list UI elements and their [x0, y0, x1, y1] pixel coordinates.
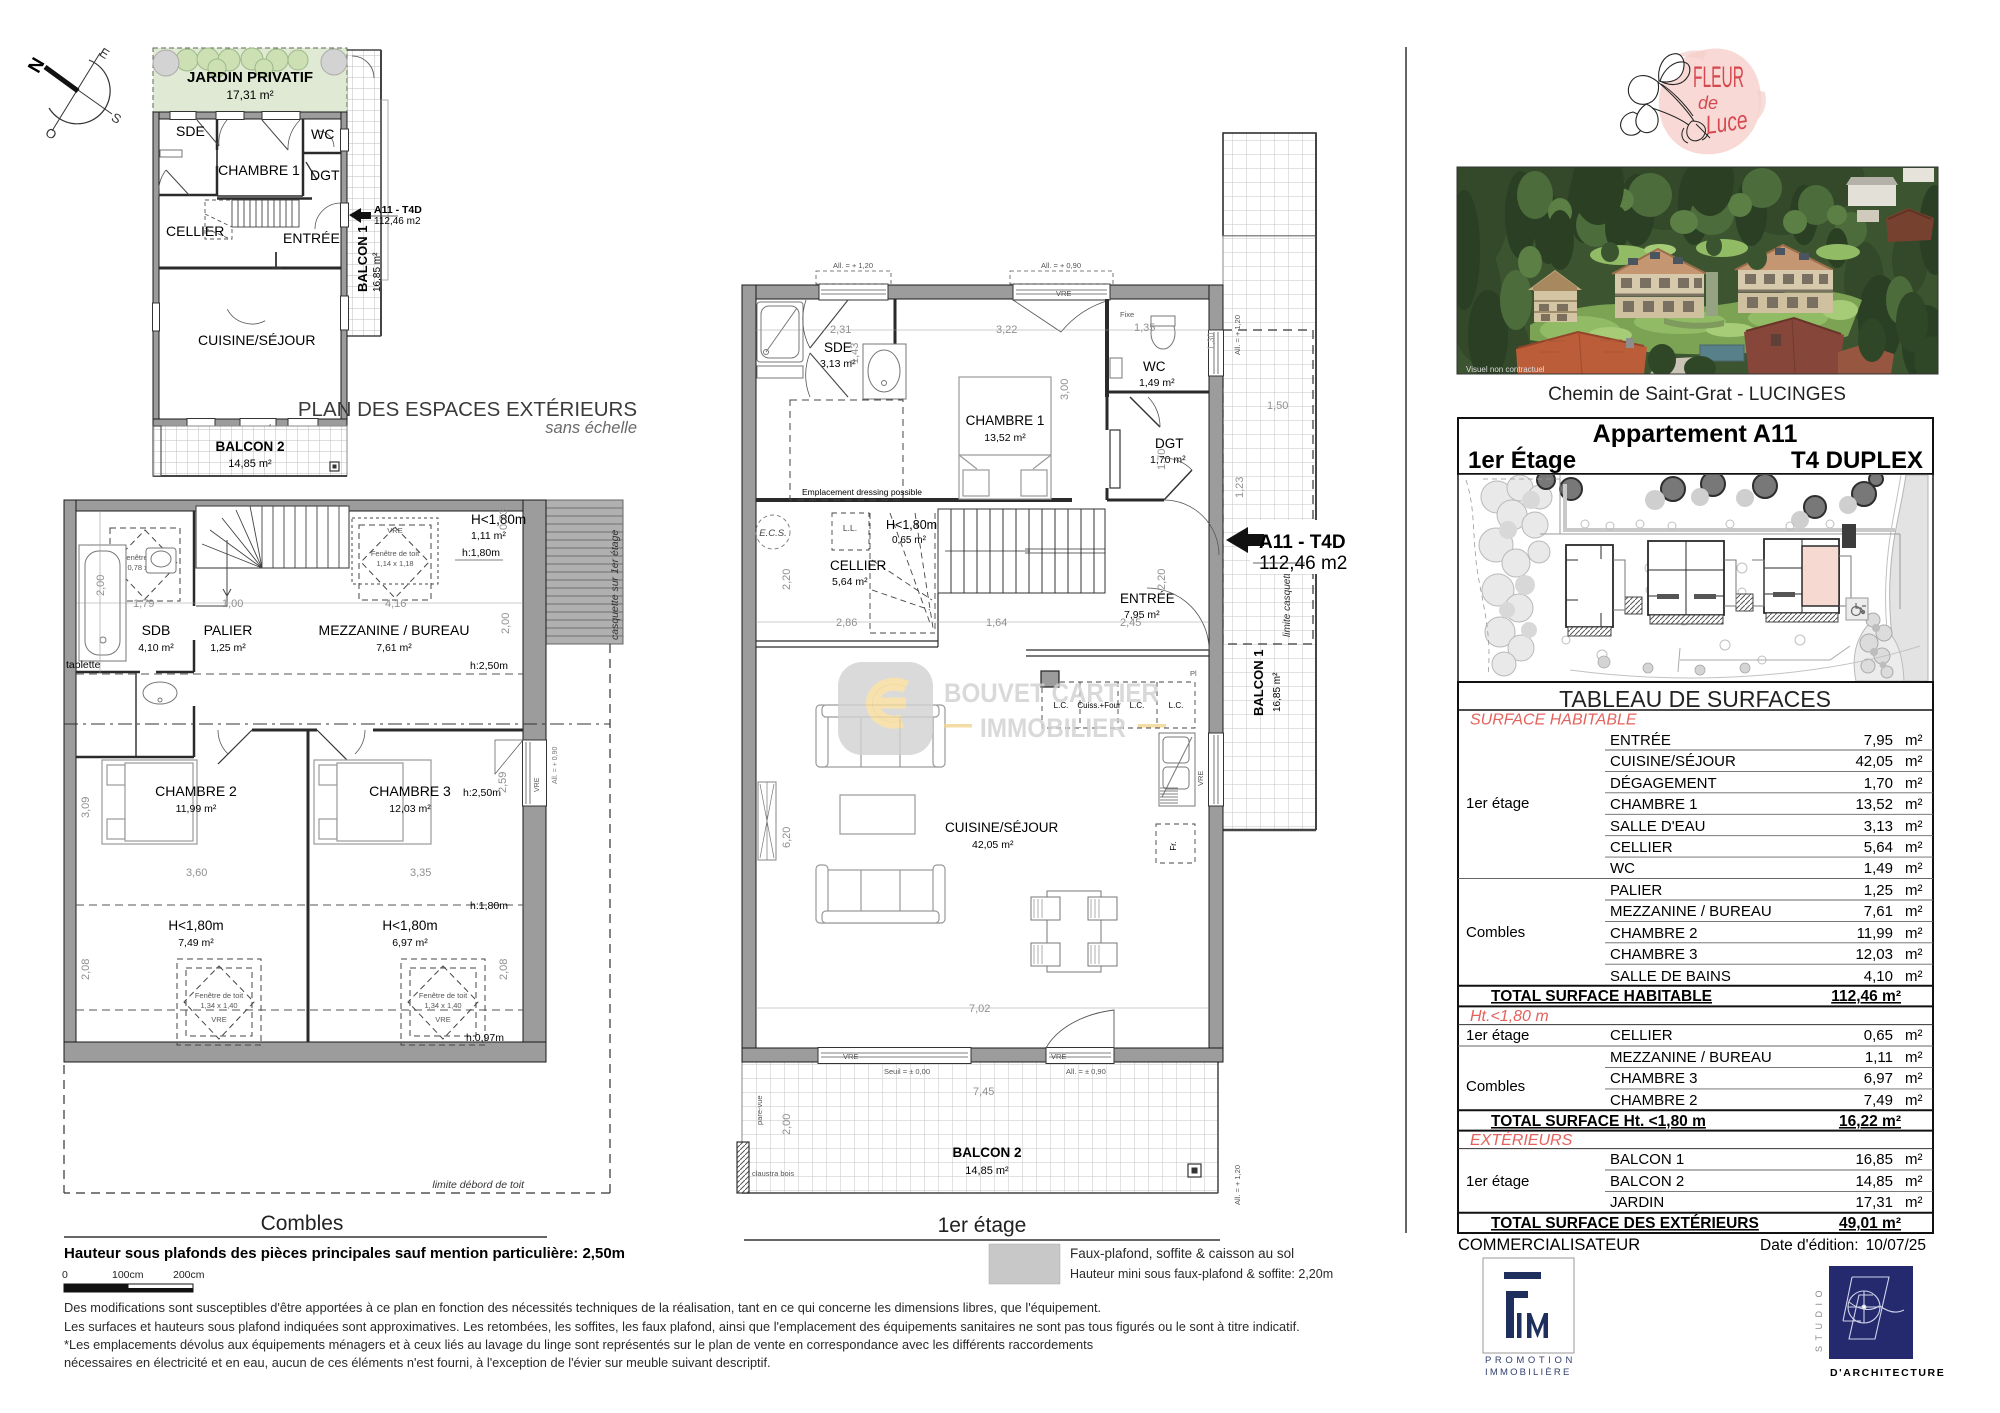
svg-text:TABLEAU DE SURFACES: TABLEAU DE SURFACES [1559, 686, 1831, 712]
svg-text:13,52 m²: 13,52 m² [984, 432, 1026, 444]
svg-text:7,49 m²: 7,49 m² [178, 937, 214, 949]
svg-text:SALLE DE BAINS: SALLE DE BAINS [1610, 968, 1731, 985]
svg-text:5,64: 5,64 [1864, 839, 1893, 856]
svg-text:6,97: 6,97 [1864, 1070, 1893, 1087]
svg-text:h:0,97m: h:0,97m [466, 1032, 504, 1044]
svg-text:All. = ± 0,90: All. = ± 0,90 [1066, 1067, 1106, 1076]
svg-text:DGT: DGT [310, 167, 340, 183]
svg-text:TOTAL SURFACE HABITABLE: TOTAL SURFACE HABITABLE [1491, 988, 1712, 1005]
svg-text:2,00: 2,00 [95, 575, 107, 596]
svg-text:Hauteur mini sous faux-plafond: Hauteur mini sous faux-plafond & soffite… [1070, 1267, 1333, 1281]
svg-text:tablette: tablette [66, 659, 101, 671]
svg-text:h:2,50m: h:2,50m [463, 787, 501, 799]
svg-text:3,00: 3,00 [1059, 379, 1071, 400]
svg-text:1,79: 1,79 [133, 598, 154, 610]
svg-text:SDB: SDB [142, 622, 171, 638]
svg-text:D'ARCHITECTURE: D'ARCHITECTURE [1830, 1367, 1945, 1379]
svg-text:m²: m² [1905, 1151, 1923, 1168]
svg-text:VRE: VRE [435, 1015, 450, 1024]
svg-text:Fixe: Fixe [1120, 310, 1134, 319]
svg-text:L.C.: L.C. [1169, 701, 1184, 710]
svg-text:JARDIN: JARDIN [1610, 1194, 1664, 1211]
svg-text:17,31 m²: 17,31 m² [226, 88, 273, 102]
svg-text:m²: m² [1905, 946, 1923, 963]
svg-text:MEZZANINE / BUREAU: MEZZANINE / BUREAU [1610, 1049, 1772, 1066]
svg-text:All. = + 1,20: All. = + 1,20 [1233, 315, 1242, 355]
svg-text:112,46 m²: 112,46 m² [1831, 988, 1901, 1005]
svg-text:limite casquette: limite casquette [1282, 567, 1293, 637]
svg-text:m²: m² [1905, 1092, 1923, 1109]
svg-text:FLEUR: FLEUR [1693, 61, 1744, 94]
svg-text:3,35: 3,35 [410, 867, 431, 879]
svg-text:2,20: 2,20 [781, 569, 793, 590]
svg-text:11,99 m²: 11,99 m² [176, 803, 217, 815]
svg-text:CHAMBRE 3: CHAMBRE 3 [1610, 1070, 1698, 1087]
svg-text:pare-vue: pare-vue [755, 1095, 764, 1125]
svg-text:7,45: 7,45 [973, 1086, 994, 1098]
svg-text:Pl: Pl [1190, 669, 1197, 678]
svg-text:2,45: 2,45 [1120, 617, 1141, 629]
svg-text:casquette sur 1er étage: casquette sur 1er étage [609, 530, 621, 640]
svg-text:Des modifications sont suscept: Des modifications sont susceptibles d'êt… [64, 1300, 1101, 1315]
svg-text:17,31: 17,31 [1855, 1194, 1893, 1211]
svg-text:1,49: 1,49 [1864, 860, 1893, 877]
svg-text:7,49: 7,49 [1864, 1092, 1893, 1109]
svg-text:m²: m² [1905, 818, 1923, 835]
svg-text:14,85 m²: 14,85 m² [228, 458, 272, 470]
svg-text:3,13: 3,13 [1864, 818, 1893, 835]
svg-text:1,11: 1,11 [1865, 1049, 1893, 1066]
svg-text:6,97 m²: 6,97 m² [392, 937, 428, 949]
svg-text:m²: m² [1905, 732, 1923, 749]
svg-text:WC: WC [311, 126, 334, 142]
svg-text:CUISINE/SÉJOUR: CUISINE/SÉJOUR [198, 332, 315, 348]
svg-text:1,70: 1,70 [1156, 449, 1168, 470]
svg-text:4,16: 4,16 [385, 598, 406, 610]
svg-text:m²: m² [1905, 860, 1923, 877]
svg-text:14,85 m²: 14,85 m² [965, 1165, 1009, 1177]
svg-text:Seuil = ± 0,00: Seuil = ± 0,00 [884, 1067, 930, 1076]
svg-text:2,86: 2,86 [836, 617, 857, 629]
svg-text:CUISINE/SÉJOUR: CUISINE/SÉJOUR [1610, 753, 1736, 770]
svg-text:CELLIER: CELLIER [166, 223, 224, 239]
svg-text:h:1,80m: h:1,80m [470, 900, 508, 912]
svg-text:CHAMBRE 2: CHAMBRE 2 [155, 783, 237, 799]
svg-text:H<1,80m: H<1,80m [382, 918, 437, 933]
svg-text:1,70: 1,70 [1864, 775, 1893, 792]
svg-text:m²: m² [1905, 903, 1923, 920]
svg-text:Les surfaces et hauteurs sous: Les surfaces et hauteurs sous plafond in… [64, 1319, 1300, 1334]
svg-text:1,25: 1,25 [1864, 882, 1893, 899]
svg-text:Appartement A11: Appartement A11 [1593, 420, 1798, 448]
svg-text:1,50: 1,50 [1267, 400, 1288, 412]
svg-text:CHAMBRE 2: CHAMBRE 2 [1610, 1092, 1698, 1109]
svg-text:Fr.: Fr. [1169, 841, 1178, 850]
svg-text:BALCON 2: BALCON 2 [1610, 1173, 1684, 1190]
svg-text:1,30: 1,30 [1206, 332, 1216, 350]
svg-text:Combles: Combles [261, 1212, 344, 1235]
svg-text:Faux-plafond, soffite & caisso: Faux-plafond, soffite & caisson au sol [1070, 1246, 1294, 1261]
svg-text:4,10 m²: 4,10 m² [138, 642, 174, 654]
svg-text:All. = + 1,20: All. = + 1,20 [833, 261, 873, 270]
svg-text:3,60: 3,60 [186, 867, 207, 879]
svg-text:CHAMBRE 1: CHAMBRE 1 [966, 413, 1045, 428]
svg-text:PLAN DES ESPACES EXTÉRIEURS: PLAN DES ESPACES EXTÉRIEURS [298, 398, 637, 421]
svg-text:Chemin de Saint-Grat - LUCINGE: Chemin de Saint-Grat - LUCINGES [1548, 384, 1846, 405]
svg-text:42,05 m²: 42,05 m² [972, 839, 1014, 851]
svg-text:1,49 m²: 1,49 m² [1139, 377, 1175, 389]
svg-text:m²: m² [1905, 968, 1923, 985]
svg-text:CHAMBRE 1: CHAMBRE 1 [1610, 796, 1698, 813]
svg-text:*Les emplacements dévolus aux: *Les emplacements dévolus aux équipement… [64, 1337, 1093, 1352]
svg-text:100cm: 100cm [112, 1269, 144, 1281]
svg-text:DÉGAGEMENT: DÉGAGEMENT [1610, 775, 1717, 792]
svg-text:10/07/25: 10/07/25 [1866, 1237, 1926, 1254]
svg-text:11,99: 11,99 [1857, 925, 1893, 942]
svg-text:claustra bois: claustra bois [752, 1169, 794, 1178]
svg-text:CHAMBRE 3: CHAMBRE 3 [369, 783, 451, 799]
svg-text:T4 DUPLEX: T4 DUPLEX [1791, 447, 1923, 474]
svg-text:Combles: Combles [1466, 924, 1525, 941]
svg-text:7,61: 7,61 [1864, 903, 1893, 920]
svg-text:VRE: VRE [387, 526, 402, 535]
svg-text:ENTRÉE: ENTRÉE [283, 230, 340, 246]
svg-text:H<1,80m: H<1,80m [886, 518, 937, 532]
svg-text:SDE: SDE [176, 123, 205, 139]
svg-text:2,00: 2,00 [781, 1114, 793, 1135]
svg-text:nécessaires en électricité et: nécessaires en électricité et en eau, au… [64, 1355, 771, 1370]
svg-text:VRE: VRE [843, 1052, 858, 1061]
svg-text:2,59: 2,59 [497, 772, 509, 793]
svg-text:A11 - T4D: A11 - T4D [374, 204, 422, 216]
svg-text:All. = + 0,90: All. = + 0,90 [1041, 261, 1081, 270]
svg-text:2,20: 2,20 [1156, 569, 1168, 590]
svg-text:112,46 m2: 112,46 m2 [374, 216, 421, 227]
svg-text:BALCON 1: BALCON 1 [1251, 650, 1266, 716]
svg-text:m²: m² [1905, 1027, 1923, 1044]
svg-text:MEZZANINE / BUREAU: MEZZANINE / BUREAU [1610, 903, 1772, 920]
svg-text:m²: m² [1905, 1173, 1923, 1190]
svg-text:m²: m² [1905, 1070, 1923, 1087]
svg-text:1,23: 1,23 [1234, 477, 1246, 498]
svg-text:1,11 m²: 1,11 m² [471, 530, 506, 542]
svg-text:BALCON 2: BALCON 2 [952, 1145, 1021, 1160]
svg-text:TOTAL SURFACE Ht. <1,80 m: TOTAL SURFACE Ht. <1,80 m [1491, 1113, 1706, 1130]
svg-text:Fenêtre de toit: Fenêtre de toit [419, 991, 468, 1000]
svg-text:1er étage: 1er étage [1466, 1027, 1529, 1044]
svg-text:ENTRÉE: ENTRÉE [1610, 732, 1671, 749]
svg-text:1,43: 1,43 [849, 343, 861, 364]
svg-text:VRE: VRE [1056, 289, 1071, 298]
svg-text:VRE: VRE [1051, 1052, 1066, 1061]
svg-text:13,52: 13,52 [1855, 796, 1893, 813]
svg-text:CELLIER: CELLIER [1610, 839, 1673, 856]
svg-text:STUDIO: STUDIO [1814, 1285, 1824, 1352]
svg-text:sans échelle: sans échelle [545, 419, 637, 437]
svg-text:EXTÉRIEURS: EXTÉRIEURS [1470, 1130, 1573, 1149]
svg-text:16,85: 16,85 [1855, 1151, 1893, 1168]
svg-text:3,09: 3,09 [80, 797, 92, 818]
svg-text:m²: m² [1905, 775, 1923, 792]
svg-text:112,46 m2: 112,46 m2 [1259, 553, 1347, 574]
svg-text:m²: m² [1905, 839, 1923, 856]
svg-text:COMMERCIALISATEUR: COMMERCIALISATEUR [1458, 1236, 1640, 1254]
svg-text:Combles: Combles [1466, 1078, 1525, 1095]
svg-text:m²: m² [1905, 925, 1923, 942]
svg-text:Emplacement dressing possible: Emplacement dressing possible [802, 487, 922, 497]
svg-text:A11 - T4D: A11 - T4D [1259, 532, 1346, 553]
svg-text:7,95: 7,95 [1864, 732, 1893, 749]
svg-text:1,35: 1,35 [1134, 322, 1155, 334]
svg-text:CELLIER: CELLIER [830, 558, 887, 573]
svg-text:VRE: VRE [211, 1015, 226, 1024]
svg-text:0: 0 [62, 1269, 68, 1281]
svg-text:L.L.: L.L. [843, 523, 857, 533]
svg-text:limite débord de toit: limite débord de toit [432, 1179, 525, 1191]
svg-text:JARDIN PRIVATIF: JARDIN PRIVATIF [187, 69, 313, 86]
svg-text:0,65 m²: 0,65 m² [892, 535, 927, 546]
svg-text:200cm: 200cm [173, 1269, 205, 1281]
svg-text:5,64 m²: 5,64 m² [832, 576, 868, 588]
svg-text:IMMOBILIER: IMMOBILIER [980, 713, 1126, 743]
svg-text:Date d'édition:: Date d'édition: [1760, 1237, 1859, 1254]
svg-text:1,25 m²: 1,25 m² [210, 642, 246, 654]
svg-text:CHAMBRE 3: CHAMBRE 3 [1610, 946, 1698, 963]
svg-text:WC: WC [1610, 860, 1635, 877]
svg-text:16,85 m²: 16,85 m² [372, 252, 383, 292]
svg-text:WC: WC [1143, 359, 1166, 374]
svg-text:49,01 m²: 49,01 m² [1839, 1215, 1901, 1232]
svg-text:All. = + 0,90: All. = + 0,90 [552, 747, 559, 784]
svg-text:0,65: 0,65 [1864, 1027, 1893, 1044]
svg-text:1er Étage: 1er Étage [1468, 446, 1576, 474]
svg-text:m²: m² [1905, 796, 1923, 813]
svg-text:Visuel non contractuel: Visuel non contractuel [1466, 365, 1545, 374]
svg-text:1,64: 1,64 [986, 617, 1007, 629]
svg-text:1,00: 1,00 [222, 598, 243, 610]
svg-text:SDE: SDE [824, 340, 852, 355]
svg-text:CHAMBRE 1: CHAMBRE 1 [218, 162, 300, 178]
svg-text:1,34 x 1,40: 1,34 x 1,40 [200, 1001, 237, 1010]
svg-text:h:2,50m: h:2,50m [470, 660, 508, 672]
svg-text:16,22 m²: 16,22 m² [1839, 1113, 1901, 1130]
svg-text:CELLIER: CELLIER [1610, 1027, 1673, 1044]
svg-text:PROMOTION: PROMOTION [1485, 1355, 1576, 1366]
svg-text:7,02: 7,02 [969, 1003, 990, 1015]
svg-text:E.C.S.: E.C.S. [759, 528, 786, 539]
svg-text:2,08: 2,08 [498, 959, 510, 980]
svg-text:SURFACE HABITABLE: SURFACE HABITABLE [1470, 712, 1637, 729]
svg-text:12,03 m²: 12,03 m² [389, 803, 431, 815]
svg-text:1,14 x 1,18: 1,14 x 1,18 [376, 559, 413, 568]
svg-text:4,10: 4,10 [1864, 968, 1893, 985]
svg-text:1er étage: 1er étage [938, 1214, 1027, 1237]
svg-text:ENTRÉE: ENTRÉE [1120, 591, 1175, 606]
svg-text:PALIER: PALIER [1610, 882, 1662, 899]
svg-text:VRE: VRE [534, 777, 541, 792]
svg-text:Ht.<1,80 m: Ht.<1,80 m [1470, 1008, 1549, 1025]
svg-text:1,34 x 1,40: 1,34 x 1,40 [424, 1001, 461, 1010]
svg-text:Hauteur sous plafonds des pièc: Hauteur sous plafonds des pièces princip… [64, 1245, 625, 1262]
svg-text:2,08: 2,08 [80, 959, 92, 980]
svg-text:0,73: 0,73 [498, 509, 510, 530]
svg-text:All. = + 1,20: All. = + 1,20 [1233, 1165, 1242, 1205]
svg-text:PALIER: PALIER [204, 622, 253, 638]
svg-text:16,85 m²: 16,85 m² [1272, 672, 1283, 712]
svg-text:MEZZANINE / BUREAU: MEZZANINE / BUREAU [319, 622, 470, 638]
svg-text:CUISINE/SÉJOUR: CUISINE/SÉJOUR [945, 820, 1059, 835]
svg-text:7,61 m²: 7,61 m² [376, 642, 412, 654]
svg-text:BALCON 1: BALCON 1 [355, 226, 370, 292]
svg-text:SALLE D'EAU: SALLE D'EAU [1610, 818, 1705, 835]
svg-text:VRE: VRE [1196, 771, 1205, 786]
svg-text:m²: m² [1905, 753, 1923, 770]
svg-text:Fenêtre de toit: Fenêtre de toit [371, 549, 420, 558]
svg-text:IMMOBILIÈRE: IMMOBILIÈRE [1485, 1367, 1572, 1378]
svg-text:TOTAL SURFACE DES EXTÉRIEURS: TOTAL SURFACE DES EXTÉRIEURS [1491, 1215, 1759, 1232]
svg-text:CHAMBRE 2: CHAMBRE 2 [1610, 925, 1698, 942]
svg-text:12,03: 12,03 [1855, 946, 1893, 963]
svg-text:14,85: 14,85 [1855, 1173, 1893, 1190]
svg-text:2,00: 2,00 [500, 613, 512, 634]
svg-text:6,20: 6,20 [781, 827, 793, 848]
svg-text:Luce: Luce [1704, 104, 1750, 140]
svg-text:m²: m² [1905, 1049, 1923, 1066]
svg-text:Fenêtre de toit: Fenêtre de toit [195, 991, 244, 1000]
svg-text:1er étage: 1er étage [1466, 795, 1529, 812]
svg-text:1er étage: 1er étage [1466, 1173, 1529, 1190]
svg-text:BALCON 2: BALCON 2 [215, 439, 284, 454]
svg-text:m²: m² [1905, 882, 1923, 899]
svg-text:BOUVET CARTIER: BOUVET CARTIER [944, 678, 1159, 708]
svg-text:m²: m² [1905, 1194, 1923, 1211]
svg-text:h:1,80m: h:1,80m [462, 547, 500, 559]
svg-text:H<1,80m: H<1,80m [168, 918, 223, 933]
svg-text:42,05: 42,05 [1855, 753, 1893, 770]
svg-text:BALCON 1: BALCON 1 [1610, 1151, 1684, 1168]
